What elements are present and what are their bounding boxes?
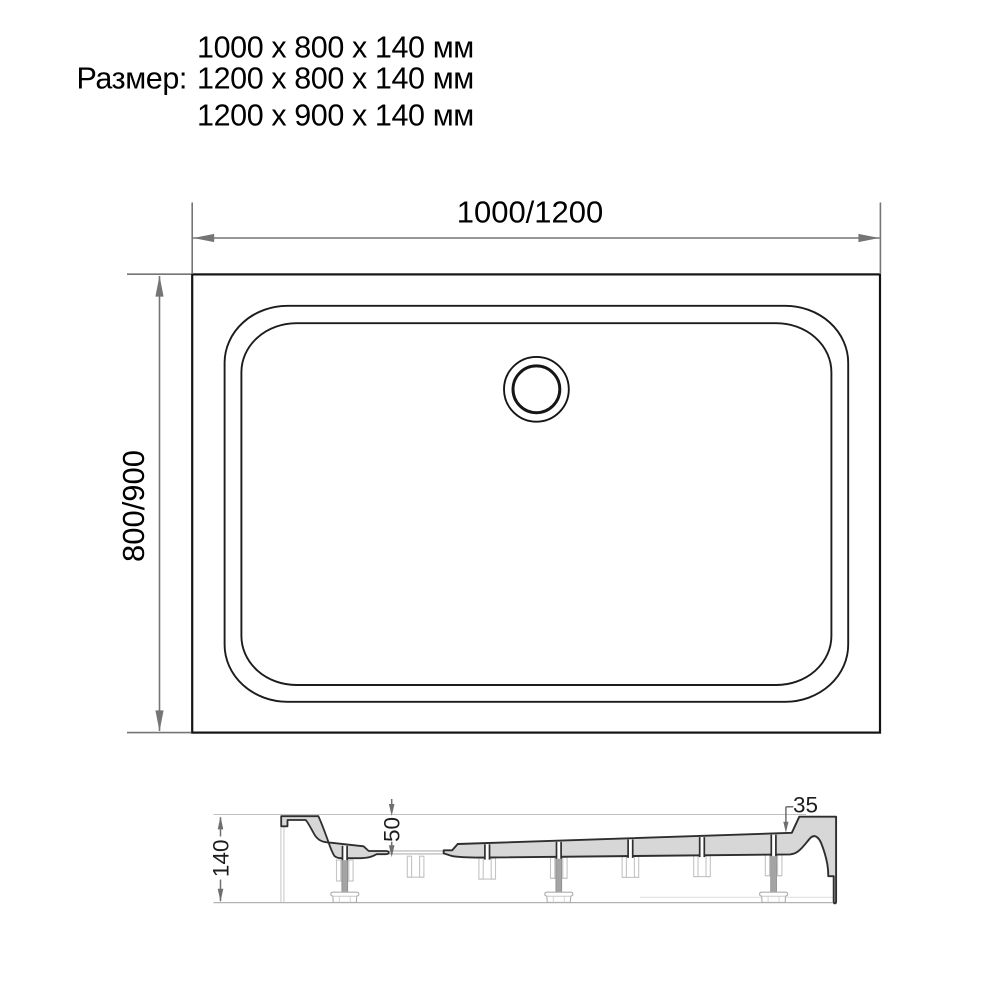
svg-text:Размер:: Размер: [77,62,188,96]
svg-text:1000/1200: 1000/1200 [457,195,604,230]
svg-text:1000 x 800 x 140 мм: 1000 x 800 x 140 мм [197,31,474,65]
svg-text:1200 x 800 x 140 мм: 1200 x 800 x 140 мм [197,62,474,96]
svg-text:1200 x 900 x 140 мм: 1200 x 900 x 140 мм [197,99,474,133]
svg-text:800/900: 800/900 [116,450,151,562]
svg-text:140: 140 [208,840,233,878]
svg-text:50: 50 [380,817,405,842]
svg-text:35: 35 [793,793,818,818]
